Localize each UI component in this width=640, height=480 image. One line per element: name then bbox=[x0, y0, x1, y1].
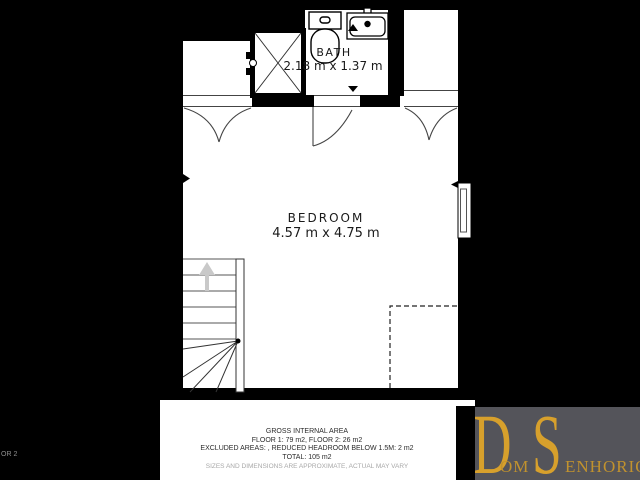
bedroom-room-label: BEDROOM bbox=[266, 211, 386, 225]
window bbox=[458, 183, 471, 238]
room-fills bbox=[160, 10, 475, 480]
sink bbox=[347, 8, 388, 39]
bath-dimensions: 2.18 m x 1.37 m bbox=[258, 59, 408, 73]
brand-logo: D OM S ENHORIO bbox=[475, 407, 640, 480]
excluded-areas-line: EXCLUDED AREAS: , REDUCED HEADROOM BELOW… bbox=[147, 445, 467, 454]
total-area-line: TOTAL: 105 m2 bbox=[147, 454, 467, 463]
edge-cutoff-label: OR 2 bbox=[1, 451, 17, 458]
logo-letter-s: S bbox=[532, 407, 562, 480]
floorplan-page: BATH 2.18 m x 1.37 m BEDROOM 4.57 m x 4.… bbox=[0, 0, 640, 480]
bedroom-dimensions: 4.57 m x 4.75 m bbox=[256, 226, 396, 241]
disclaimer-line: SIZES AND DIMENSIONS ARE APPROXIMATE, AC… bbox=[147, 463, 467, 472]
logo-letters-om: OM bbox=[500, 458, 529, 475]
gross-internal-area-title: GROSS INTERNAL AREA bbox=[147, 428, 467, 437]
floor-areas-line: FLOOR 1: 79 m2, FLOOR 2: 26 m2 bbox=[147, 437, 467, 446]
bath-room-label: BATH bbox=[294, 46, 374, 59]
logo-letters-enhorio: ENHORIO bbox=[565, 458, 640, 475]
area-summary: GROSS INTERNAL AREA FLOOR 1: 79 m2, FLOO… bbox=[147, 428, 467, 472]
